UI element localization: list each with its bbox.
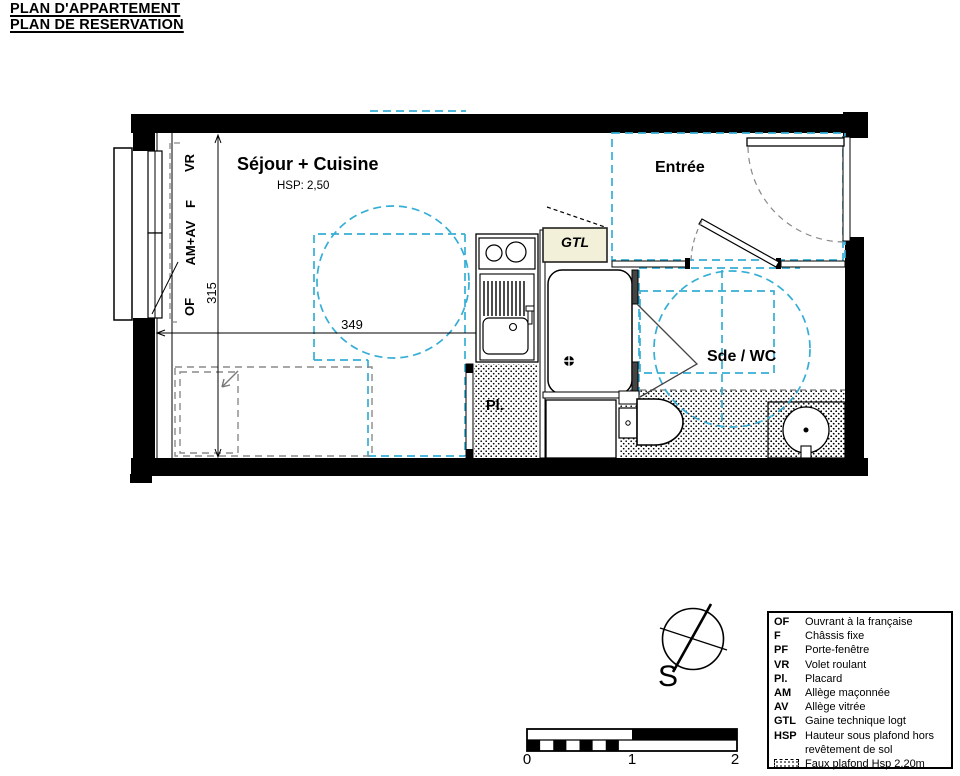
furniture-dashed (175, 367, 372, 456)
entrance-opening (843, 137, 850, 241)
placard-jamb-cap-top (466, 364, 473, 373)
interior-door-arc (691, 221, 702, 261)
clearance-circle-sejour (317, 206, 469, 358)
legend-abbr: GTL (774, 714, 805, 728)
scale-cell (580, 740, 593, 751)
legend-row: AMAllège maçonnée (774, 686, 951, 700)
washing-machine-space (546, 400, 616, 458)
entree-wall-left (612, 261, 686, 267)
toilet-bowl (637, 399, 683, 445)
wall-top (131, 114, 868, 133)
faucet-spout (528, 311, 532, 324)
scale-cell (553, 740, 566, 751)
bed-head-outline (180, 372, 238, 453)
hsp-label: HSP: 2,50 (277, 180, 329, 192)
legend-desc: Hauteur sous plafond hors revêtement de … (805, 729, 951, 757)
legend-abbr: AM (774, 686, 805, 700)
legend-desc: Faux plafond Hsp 2,20m (805, 757, 951, 773)
legend-abbr: HSP (774, 729, 805, 757)
faux-plafond-entree (612, 133, 843, 260)
partition-wall (540, 230, 545, 458)
page-title-line1: PLAN D'APPARTEMENT (10, 1, 180, 17)
legend-row: AVAllège vitrée (774, 700, 951, 714)
legend-row: PFPorte-fenêtre (774, 643, 951, 657)
legend-desc: Volet roulant (805, 658, 951, 672)
window-assembly (114, 143, 180, 322)
page-title-line2: PLAN DE RESERVATION (10, 17, 184, 33)
shower-threshold (619, 391, 639, 404)
legend-desc: Placard (805, 672, 951, 686)
wall-bottom (131, 458, 868, 476)
wall-left-upper (133, 133, 155, 151)
dim-label-315: 315 (204, 258, 218, 328)
shower-jamb-bottom (632, 362, 638, 394)
legend-desc: Ouvrant à la française (805, 615, 951, 629)
scale-tick-0: 0 (518, 751, 536, 768)
legend-desc: Châssis fixe (805, 629, 951, 643)
gtl-label: GTL (543, 234, 607, 250)
placard-jamb (466, 364, 473, 458)
kitchen-block (476, 234, 538, 362)
legend-desc: Gaine technique logt (805, 714, 951, 728)
shower-step (543, 392, 620, 398)
room-label-sde-wc: Sde / WC (707, 348, 776, 366)
wall-bottom-tab (130, 474, 152, 483)
legend-row: Pl.Placard (774, 672, 951, 686)
legend-row: OFOuvrant à la française (774, 615, 951, 629)
legend-desc: Porte-fenêtre (805, 643, 951, 657)
legend-row: Faux plafond Hsp 2,20m (774, 757, 951, 773)
floor-plan-page: PLAN D'APPARTEMENT PLAN DE RESERVATION S… (0, 0, 960, 776)
compass-south-label: S (658, 660, 678, 694)
compass-crossline (660, 628, 727, 650)
entree-partition (612, 219, 845, 269)
bed-outline (175, 367, 372, 456)
gtl-dashed-flap (547, 207, 605, 227)
placard-hatch (474, 364, 538, 458)
legend-row: VRVolet roulant (774, 658, 951, 672)
room-label-entree: Entrée (655, 159, 705, 177)
burner-right (506, 242, 526, 262)
scale-cell (527, 740, 540, 751)
scale-tick-2: 2 (726, 751, 744, 768)
legend-abbr: AV (774, 700, 805, 714)
faux-plafond-swatch (774, 757, 805, 773)
legend-desc: Allège maçonnée (805, 686, 951, 700)
room-label-placard: Pl. (486, 398, 504, 414)
entrance-door-arc (748, 147, 844, 242)
legend-abbr: F (774, 629, 805, 643)
wall-top-right-block (843, 112, 868, 138)
sde-door-leaf (637, 304, 697, 397)
shower-jamb-top (632, 270, 638, 304)
legend-desc: Allège vitrée (805, 700, 951, 714)
scale-cell (606, 740, 619, 751)
legend-box: OFOuvrant à la française FChâssis fixe P… (767, 611, 953, 769)
scale-bar-black-half (632, 729, 737, 740)
scale-tick-1: 1 (623, 751, 641, 768)
placard-jamb-cap-bottom (466, 449, 473, 458)
legend-row: GTLGaine technique logt (774, 714, 951, 728)
window-label-of: OF (182, 272, 196, 342)
entree-wall-right (781, 261, 845, 267)
legend-row: HSPHauteur sous plafond hors revêtement … (774, 729, 951, 757)
room-label-sejour: Séjour + Cuisine (237, 154, 379, 175)
shower-tray (548, 270, 632, 394)
sink-drain (510, 324, 517, 331)
wall-right (845, 237, 864, 458)
dim-label-349: 349 (332, 317, 372, 332)
door-jamb-left (685, 258, 690, 269)
roller-shutter-box (114, 148, 132, 320)
faux-plafond-sejour (314, 234, 465, 456)
legend-row: FChâssis fixe (774, 629, 951, 643)
legend-abbr: PF (774, 643, 805, 657)
bed-arrow (222, 371, 238, 387)
washbasin-tap (801, 446, 811, 458)
legend-abbr: OF (774, 615, 805, 629)
legend-abbr: Pl. (774, 672, 805, 686)
wall-left-lower (133, 318, 155, 460)
entrance-door (747, 137, 850, 242)
legend-abbr: VR (774, 658, 805, 672)
faucet-base (526, 306, 534, 311)
washbasin-drain (804, 428, 808, 432)
window-label-am-av: AM+AV (183, 208, 197, 278)
burner-left (486, 245, 502, 261)
sink-basin (483, 318, 528, 354)
scale-bar (527, 729, 737, 751)
entrance-door-leaf (747, 138, 844, 146)
toilet-button (626, 421, 630, 425)
